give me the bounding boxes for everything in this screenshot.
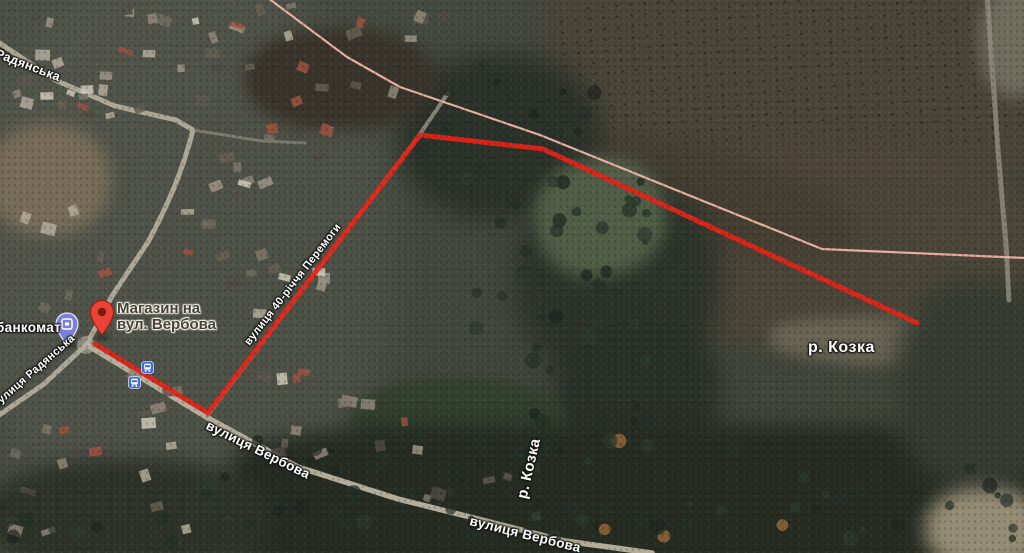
poi-label-line1: Магазин на bbox=[117, 301, 216, 317]
poi-label-line2: вул. Вербова bbox=[117, 317, 216, 333]
atm-label: банкомат bbox=[0, 320, 61, 335]
map-canvas[interactable]: Радянська банкомат вулиця Радянська Мага… bbox=[0, 0, 1024, 553]
place-pin-icon[interactable] bbox=[89, 299, 115, 337]
bus-stop-icon[interactable] bbox=[141, 361, 154, 374]
poi-label-shop[interactable]: Магазин на вул. Вербова bbox=[117, 301, 216, 333]
bus-stop-icon[interactable] bbox=[128, 376, 141, 389]
texture-grain-2 bbox=[0, 0, 1024, 553]
river-label-kozka-right: р. Козка bbox=[808, 339, 875, 357]
